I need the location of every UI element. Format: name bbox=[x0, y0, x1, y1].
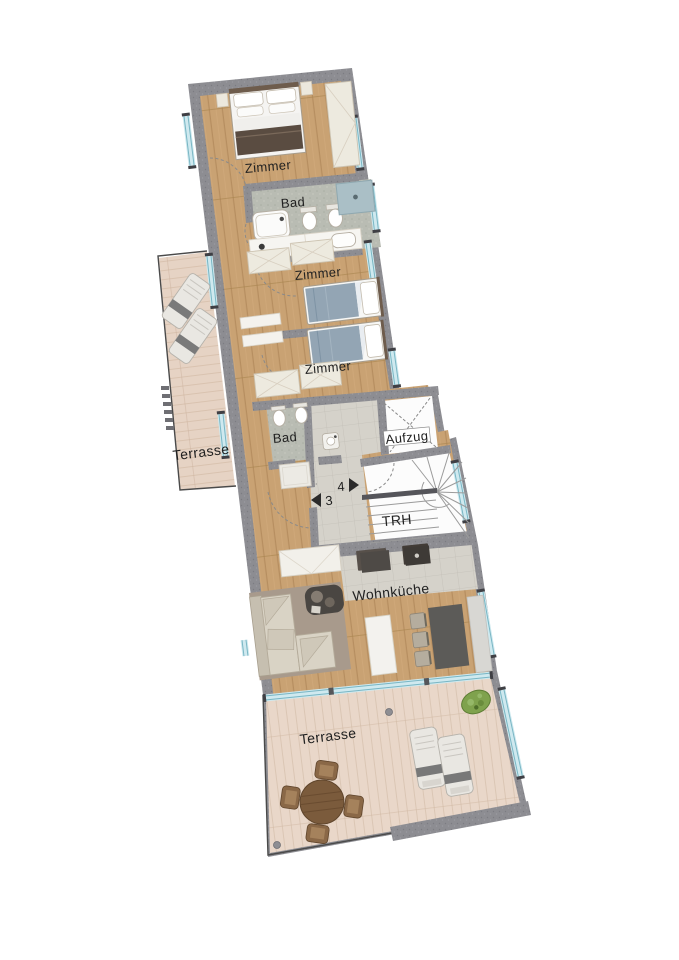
cooktop bbox=[360, 550, 391, 573]
pillow bbox=[364, 324, 384, 358]
sofa-cushion bbox=[268, 629, 294, 649]
terrace-column bbox=[274, 842, 281, 849]
shower bbox=[336, 180, 375, 215]
chair-seat bbox=[319, 764, 334, 777]
floor-plan-canvas: Zimmer Bad Zimmer Zimmer Bad Aufzug TRH … bbox=[0, 0, 679, 960]
label-bath2: Bad bbox=[272, 429, 298, 446]
floor-plan-page: Zimmer Bad Zimmer Zimmer Bad Aufzug TRH … bbox=[0, 0, 679, 960]
chair-seat bbox=[284, 790, 297, 805]
label-unit4: 4 bbox=[337, 479, 346, 495]
pillow bbox=[360, 281, 380, 315]
chair-seat bbox=[310, 827, 325, 840]
chair-seat bbox=[347, 799, 360, 814]
glazing-post bbox=[328, 688, 334, 695]
nightstand bbox=[216, 93, 228, 107]
label-stairwell: TRH bbox=[381, 511, 412, 530]
pillow bbox=[233, 92, 263, 108]
sofa-area bbox=[249, 582, 352, 681]
terrace-column bbox=[386, 709, 393, 716]
sink-bath2 bbox=[322, 432, 340, 450]
window-living-left bbox=[241, 640, 250, 657]
label-unit3: 3 bbox=[325, 493, 334, 509]
coffee-table bbox=[304, 584, 345, 616]
wash-basin bbox=[331, 232, 356, 248]
pillow bbox=[266, 88, 296, 104]
label-bath1: Bad bbox=[280, 194, 306, 211]
shower-bath2 bbox=[279, 462, 311, 489]
nightstand bbox=[300, 81, 312, 95]
glazing-post bbox=[424, 678, 430, 685]
